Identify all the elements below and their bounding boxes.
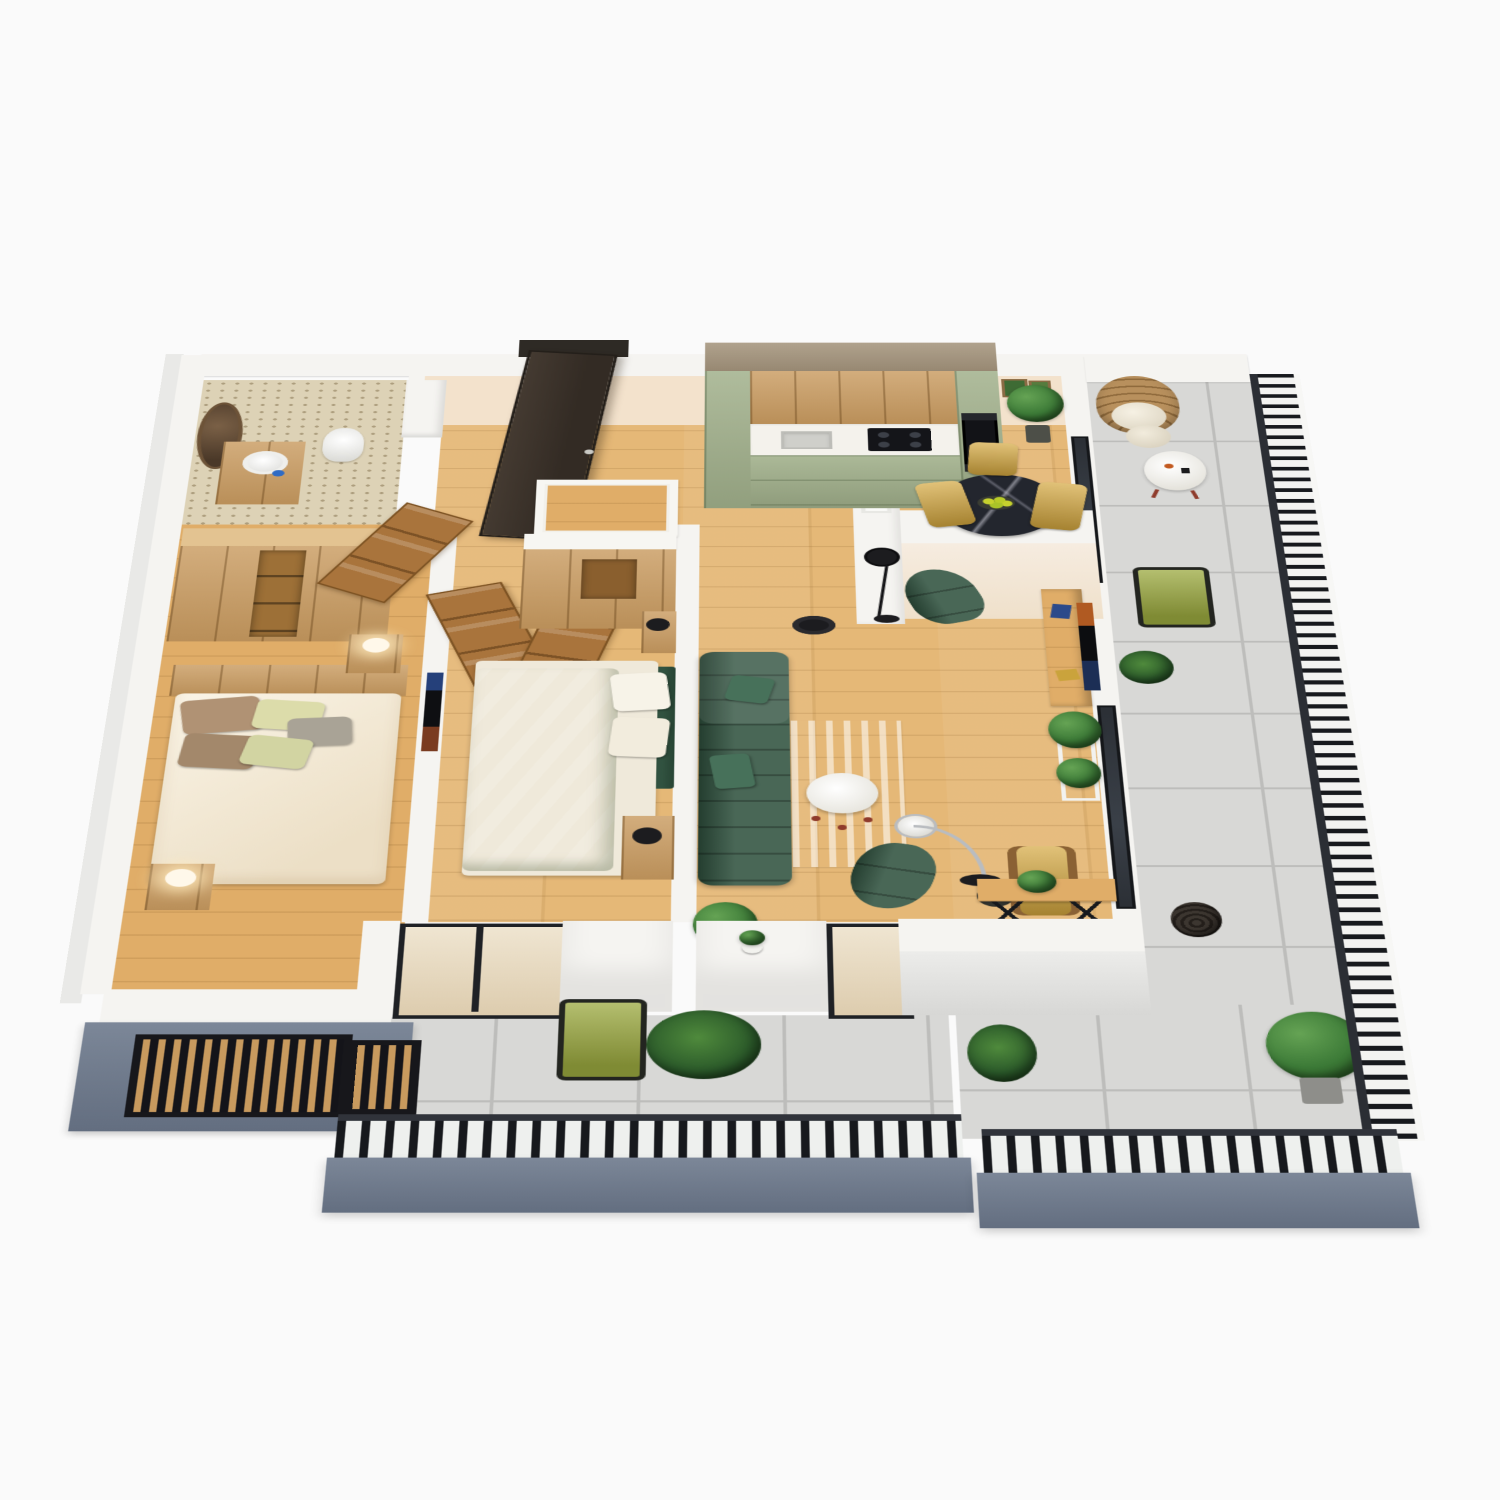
sofa-pillow-1 — [723, 675, 775, 705]
dining-corner-plant-pot — [1025, 425, 1051, 443]
bed2-pillow-2 — [607, 717, 670, 758]
kitchen-upper-cabinets — [750, 371, 958, 424]
hall-console-top — [546, 486, 667, 531]
round-coffee-table — [806, 773, 879, 813]
bed2-pillow-1 — [610, 672, 672, 712]
dining-chair-east — [1029, 481, 1089, 531]
wardrobe2-top-trim — [524, 534, 677, 549]
render-canvas — [0, 0, 1500, 1500]
apartment-plan — [33, 365, 1427, 1290]
fruit-bowl — [977, 496, 1015, 510]
console-books — [1050, 604, 1072, 619]
small-pot-plant — [739, 930, 765, 945]
kitchen-tall-cabinet-left — [704, 371, 751, 508]
balcony-shrub-pot — [1299, 1078, 1344, 1104]
balcony-olive-chair — [1132, 567, 1216, 627]
gas-cooktop — [867, 428, 931, 451]
bed2-duvet — [462, 668, 619, 871]
coffee-table-leg-2 — [863, 817, 872, 822]
bedroom2-sliding-door — [392, 924, 574, 1019]
wardrobe1-open-shelves — [249, 550, 306, 636]
coffee-table-leg-3 — [838, 825, 847, 830]
console-table-plant — [1016, 870, 1057, 892]
bed2-lamp-south — [632, 827, 662, 844]
louvered-window-corner — [343, 1040, 421, 1114]
toilet — [321, 428, 366, 461]
bottom-balcony-olive-chair — [556, 999, 647, 1080]
sofa-pillow-2 — [709, 753, 756, 789]
black-floor-lamp-shade — [867, 549, 897, 565]
bed2-nightstand-south — [621, 816, 675, 880]
living-south-wall-top — [898, 919, 1145, 952]
bedroom2-south-wall — [559, 921, 673, 1012]
kitchen-cabinet-top — [705, 343, 998, 371]
bottom-balcony-fern — [646, 1010, 762, 1079]
table-cup-orange — [1164, 464, 1174, 469]
coffee-table-leg-1 — [811, 816, 820, 821]
table-cup-black — [1181, 468, 1190, 473]
living-south-wall-face — [900, 951, 1152, 1015]
console-book-gold — [1055, 669, 1081, 682]
sofa-side-lamp — [792, 616, 835, 634]
dining-chair-north — [967, 442, 1018, 476]
balcony-north-wall — [1084, 356, 1250, 382]
fascia-bottom-balcony — [322, 1158, 974, 1213]
kitchen-sink — [781, 431, 832, 449]
fascia-right-balcony — [977, 1173, 1420, 1228]
bed1-pillow-taupe-1 — [180, 695, 263, 735]
black-floor-lamp-base — [874, 615, 900, 623]
bed2-lamp-north — [646, 618, 670, 631]
bed1-pillow-sage-2 — [238, 734, 316, 770]
wardrobe2-recessed-handle — [581, 559, 638, 598]
louvered-window-main — [124, 1034, 353, 1117]
bedroom1-south-wall-top — [99, 989, 394, 1026]
